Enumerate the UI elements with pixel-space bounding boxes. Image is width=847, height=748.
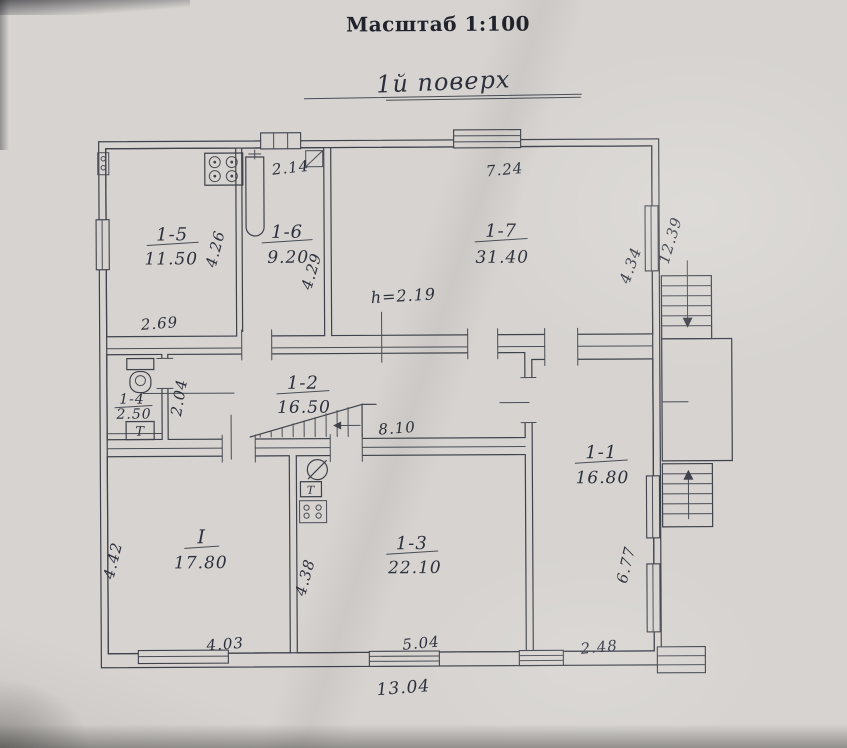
chimney-stack-icon (454, 130, 521, 148)
room-area: 31.40 (475, 248, 529, 268)
chimney-stack-icon (261, 133, 301, 149)
ceiling-height-label: h=2.19 (370, 284, 436, 307)
stoop-bottom-right (657, 647, 705, 673)
window-room-1-1-bottom (519, 650, 563, 665)
stairs-up-arrow (683, 470, 693, 480)
room-area: 11.50 (144, 249, 198, 269)
floor-label: 1й поверх (376, 65, 511, 98)
dimension-label: 4.38 (291, 557, 319, 599)
gas-meter-label: Т (135, 425, 145, 440)
room-area: 16.80 (576, 468, 630, 488)
exterior-stairs-upper (661, 261, 711, 339)
room-number: 1-7 (485, 221, 517, 242)
room-area: 9.20 (267, 248, 309, 268)
dimension-label: 2.48 (579, 636, 619, 657)
dimension-label: 5.04 (402, 632, 441, 653)
small-stove-icon (300, 501, 327, 523)
interior-walls (106, 146, 655, 654)
dimension-label: 2.14 (270, 157, 310, 179)
room-area: 2.50 (115, 407, 151, 423)
room-area: 17.80 (174, 553, 228, 573)
boiler-label: Т (307, 484, 316, 497)
room-number: 1-2 (287, 373, 319, 394)
room-1-1-outline (532, 359, 655, 652)
dimension-label: 4.03 (205, 634, 245, 655)
chimney-stacks (261, 130, 521, 149)
room-number: I (196, 526, 206, 548)
room-labels: 1-5 11.50 1-6 9.20 1-7 31.40 1-4 2.50 1-… (114, 220, 630, 580)
dimension-label: 4.42 (100, 540, 127, 582)
dimension-label: 6.77 (613, 545, 639, 586)
room-area: 22.10 (387, 558, 442, 578)
dimension-label: 8.10 (378, 418, 417, 439)
stove-icon (205, 153, 243, 185)
room-number: 1-1 (585, 442, 617, 463)
toilet-icon (127, 358, 154, 392)
room-number: 1-4 (119, 392, 145, 408)
exterior-stairs-lower (662, 464, 712, 527)
dimension-label: 7.24 (485, 159, 524, 180)
room-area: 16.50 (277, 398, 331, 418)
gas-meter-icon: Т (126, 421, 154, 439)
scale-title: Масштаб 1:100 (346, 12, 530, 37)
scanned-floor-plan-page: Масштаб 1:100 1й поверх (0, 0, 847, 748)
room-number: 1-3 (396, 533, 428, 554)
floor-plan-drawing: Масштаб 1:100 1й поверх (0, 0, 847, 748)
porch-upper (662, 338, 733, 460)
sink-icon (307, 460, 327, 480)
dimension-label: 2.69 (139, 313, 179, 334)
boiler-icon: Т (300, 482, 321, 497)
bathtub-icon (246, 150, 264, 236)
dimension-label: 4.34 (615, 245, 645, 287)
room-number: 1-6 (271, 222, 303, 243)
dimension-label: 4.26 (202, 229, 229, 271)
room-number: 1-5 (156, 224, 188, 245)
total-width-label: 13.04 (376, 676, 431, 700)
room-1-2-outline (168, 353, 525, 440)
